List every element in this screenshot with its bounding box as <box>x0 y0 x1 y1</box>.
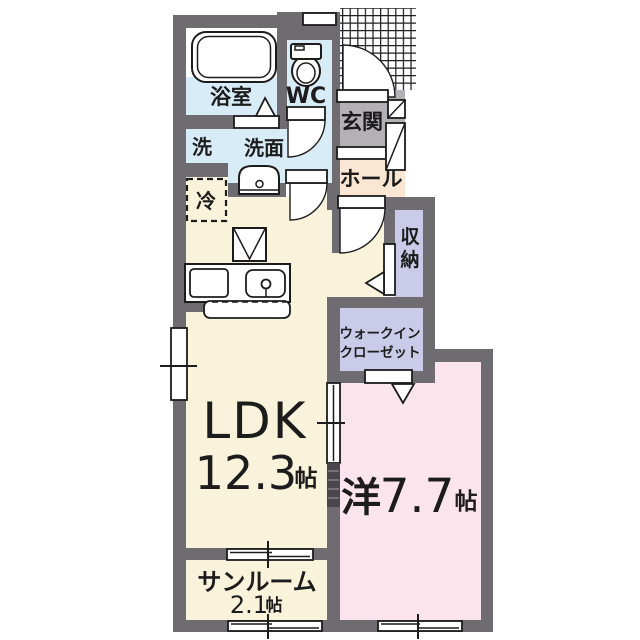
range-icon <box>233 228 266 261</box>
walkin-door-leaf <box>365 370 412 383</box>
label-fridge: 冷 <box>196 189 216 213</box>
label-walkin-1: ウォークイン <box>340 326 421 342</box>
floor-plan-canvas: 浴室 WC 洗 洗面 冷 玄関 ホール 収 納 ウォークイン クローゼット LD… <box>0 0 640 640</box>
label-sunroom-unit: 帖 <box>266 595 283 616</box>
label-sunroom-size: 2.1 <box>230 591 268 619</box>
sunroom-top-window <box>227 549 313 560</box>
ldk-left-window <box>171 328 187 400</box>
wall-ldk-western <box>327 507 340 632</box>
wall-wc-left <box>277 12 287 129</box>
washroom-door-leaf <box>286 170 327 183</box>
label-walkin-2: クローゼット <box>340 344 421 361</box>
wall-washer-bottom <box>186 163 228 177</box>
wall-bath-bottom <box>186 115 234 129</box>
entrance-door-leaf <box>337 90 388 102</box>
label-bathroom: 浴室 <box>210 85 252 109</box>
bathroom-door-leaf <box>234 116 279 128</box>
kitchen-lower-cabinet <box>204 301 290 318</box>
wall-walkin-left <box>327 297 340 383</box>
bathtub-icon <box>192 32 276 82</box>
entrance-step <box>337 147 386 159</box>
sunroom-bottom-window <box>228 621 322 631</box>
wall-closet-right <box>423 197 435 371</box>
wall-left <box>173 15 186 632</box>
toilet-bowl-icon <box>292 56 320 86</box>
kitchen-faucet-icon <box>262 280 271 289</box>
label-wc: WC <box>286 84 326 109</box>
wall-top-bath <box>173 15 287 28</box>
label-western: 洋 <box>341 475 381 521</box>
label-washer: 洗 <box>192 135 212 159</box>
label-closet-1: 収 <box>400 226 420 248</box>
label-closet-2: 納 <box>400 248 419 271</box>
label-ldk: LDK <box>202 392 307 450</box>
wall-hall-stub <box>332 210 340 253</box>
label-western-size: 7.7 <box>380 469 455 524</box>
western-bottom-window <box>378 621 462 631</box>
wall-right <box>481 349 493 632</box>
label-washroom: 洗面 <box>244 136 284 160</box>
wall-closet-left <box>384 210 395 244</box>
sliding-door-pocket <box>327 463 340 507</box>
wall-walkin-top <box>327 297 435 308</box>
label-entrance: 玄関 <box>341 110 383 134</box>
wc-window <box>303 13 336 25</box>
closet-door-leaf <box>384 244 395 295</box>
label-hall: ホール <box>340 167 403 191</box>
hall-door-leaf <box>338 196 385 208</box>
kitchen-cooktop-icon <box>190 269 228 297</box>
floor-plan: 浴室 WC 洗 洗面 冷 玄関 ホール 収 納 ウォークイン クローゼット LD… <box>0 0 640 640</box>
label-ldk-size: 12.3 <box>195 446 297 500</box>
room-western-floor-b <box>435 362 481 383</box>
label-western-unit: 帖 <box>455 489 478 515</box>
label-ldk-unit: 帖 <box>295 466 318 492</box>
